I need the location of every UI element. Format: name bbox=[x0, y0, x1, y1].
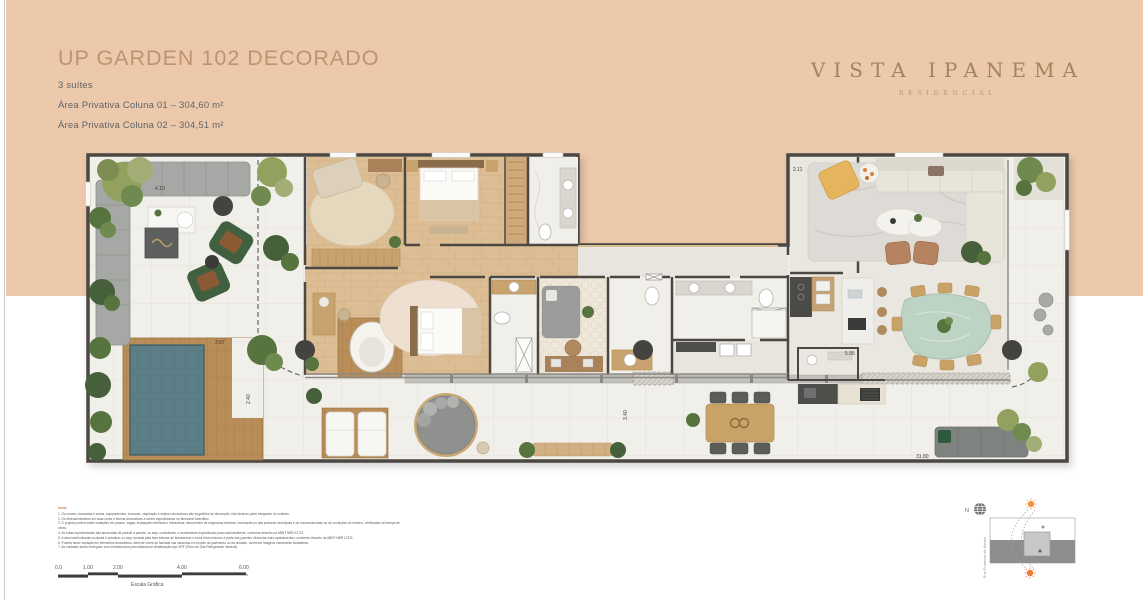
corridor-floor bbox=[578, 247, 788, 277]
scale-tick: 6.00 bbox=[239, 565, 249, 571]
dim-label: 2.40 bbox=[246, 394, 252, 404]
scale-tick: 0.0 bbox=[55, 565, 62, 571]
planter-row bbox=[862, 373, 1010, 384]
notes-heading: Notas: bbox=[58, 506, 406, 511]
dim-label: 3.40 bbox=[623, 410, 629, 420]
scale-tick: 2.00 bbox=[113, 565, 123, 571]
dim-label: 3.87 bbox=[215, 340, 225, 346]
outdoor-dining bbox=[706, 392, 774, 454]
note-line: 5. A área total indicada na planta é pri… bbox=[58, 536, 406, 541]
floor-plan: 4.10 3.87 2.40 3.40 2.11 5.95 31.80 bbox=[85, 153, 1070, 462]
leather-chair bbox=[885, 241, 911, 265]
bbq-counter bbox=[798, 384, 885, 404]
street-label: Rua Prudente de Morais bbox=[983, 537, 987, 578]
pool-water bbox=[130, 345, 204, 455]
sun-icon-bottom bbox=[1025, 568, 1036, 579]
scale-tick: 4.00 bbox=[177, 565, 187, 571]
scale-bar: 0.0 1.00 2.00 4.00 6.00 Escala Gráfica bbox=[55, 565, 249, 588]
sun-loungers bbox=[322, 408, 388, 458]
sun-icon-top bbox=[1026, 499, 1037, 510]
side-table-small bbox=[477, 442, 489, 454]
legal-notes: Notas: 1. Os móveis, bancadas e cubas, e… bbox=[58, 506, 406, 550]
compass-icon bbox=[974, 503, 986, 515]
north-label: N bbox=[965, 508, 969, 514]
key-plan: N Rua Prudente de Morais bbox=[965, 499, 1075, 579]
bench bbox=[533, 443, 612, 456]
leather-chair bbox=[913, 241, 940, 266]
dim-label: 4.10 bbox=[155, 186, 165, 192]
side-table-dark bbox=[213, 196, 233, 216]
note-line: 3. O projeto poderá sofrer variações em … bbox=[58, 521, 406, 531]
dim-label: 31.80 bbox=[916, 454, 929, 460]
pool bbox=[123, 338, 263, 460]
note-line: 7. As unidades serão entregues com infra… bbox=[58, 545, 406, 550]
scale-tick: 1.00 bbox=[83, 565, 93, 571]
dim-label: 5.95 bbox=[845, 351, 855, 357]
page: UP GARDEN 102 DECORADO 3 suítes Área Pri… bbox=[0, 0, 1143, 600]
scale-bar-label: Escala Gráfica bbox=[131, 582, 164, 588]
kitchen-island bbox=[842, 278, 874, 344]
dim-label: 2.11 bbox=[793, 167, 803, 173]
site-tower bbox=[1024, 532, 1050, 556]
wardrobe bbox=[312, 249, 400, 266]
